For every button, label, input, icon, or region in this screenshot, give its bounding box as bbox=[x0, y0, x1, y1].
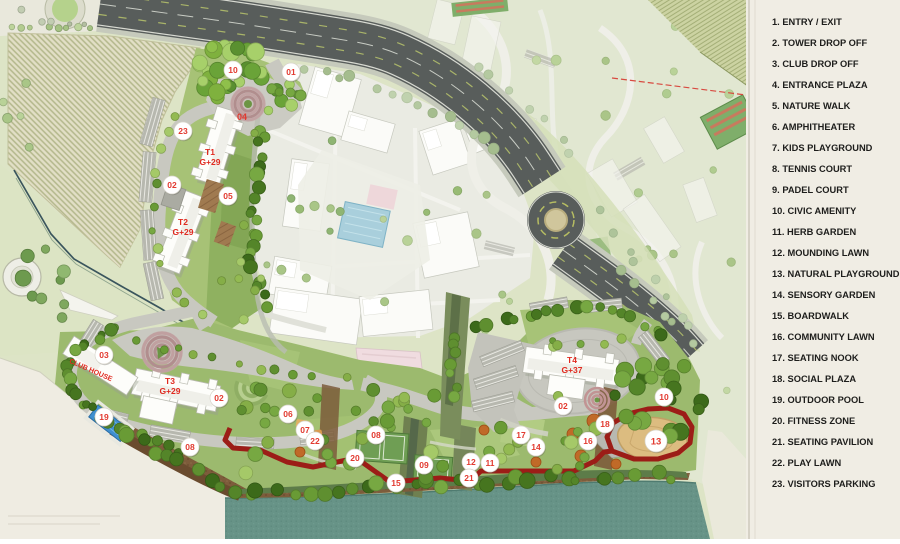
svg-text:3. CLUB DROP OFF: 3. CLUB DROP OFF bbox=[772, 59, 859, 69]
svg-text:08: 08 bbox=[371, 430, 381, 440]
svg-text:7. KIDS PLAYGROUND: 7. KIDS PLAYGROUND bbox=[772, 143, 873, 153]
svg-text:10: 10 bbox=[228, 65, 238, 75]
svg-text:06: 06 bbox=[283, 409, 293, 419]
svg-text:19. OUTDOOR POOL: 19. OUTDOOR POOL bbox=[772, 395, 864, 405]
svg-text:12: 12 bbox=[466, 457, 476, 467]
svg-text:20. FITNESS ZONE: 20. FITNESS ZONE bbox=[772, 416, 855, 426]
svg-text:16. COMMUNITY LAWN: 16. COMMUNITY LAWN bbox=[772, 332, 875, 342]
svg-text:11: 11 bbox=[486, 458, 495, 468]
svg-text:02: 02 bbox=[167, 180, 177, 190]
svg-text:22: 22 bbox=[310, 436, 320, 446]
svg-text:16: 16 bbox=[583, 436, 593, 446]
svg-text:21. SEATING PAVILION: 21. SEATING PAVILION bbox=[772, 437, 874, 447]
svg-text:12. MOUNDING LAWN: 12. MOUNDING LAWN bbox=[772, 248, 869, 258]
svg-text:11. HERB GARDEN: 11. HERB GARDEN bbox=[772, 227, 856, 237]
svg-text:2. TOWER DROP OFF: 2. TOWER DROP OFF bbox=[772, 38, 868, 48]
svg-text:14. SENSORY GARDEN: 14. SENSORY GARDEN bbox=[772, 290, 876, 300]
svg-text:08: 08 bbox=[185, 442, 195, 452]
svg-text:15. BOARDWALK: 15. BOARDWALK bbox=[772, 311, 849, 321]
svg-text:01: 01 bbox=[286, 67, 296, 77]
svg-text:18. SOCIAL PLAZA: 18. SOCIAL PLAZA bbox=[772, 374, 856, 384]
svg-text:09: 09 bbox=[419, 460, 429, 470]
svg-text:4. ENTRANCE PLAZA: 4. ENTRANCE PLAZA bbox=[772, 80, 868, 90]
svg-text:6. AMPHITHEATER: 6. AMPHITHEATER bbox=[772, 122, 855, 132]
svg-text:03: 03 bbox=[99, 350, 109, 360]
svg-text:13. NATURAL PLAYGROUND: 13. NATURAL PLAYGROUND bbox=[772, 269, 900, 279]
svg-text:10. CIVIC AMENITY: 10. CIVIC AMENITY bbox=[772, 206, 857, 216]
svg-text:9. PADEL COURT: 9. PADEL COURT bbox=[772, 185, 849, 195]
svg-text:07: 07 bbox=[300, 425, 310, 435]
svg-text:17: 17 bbox=[516, 430, 526, 440]
svg-text:23. VISITORS PARKING: 23. VISITORS PARKING bbox=[772, 479, 876, 489]
svg-text:8. TENNIS COURT: 8. TENNIS COURT bbox=[772, 164, 852, 174]
svg-text:04: 04 bbox=[237, 112, 247, 122]
svg-text:5. NATURE WALK: 5. NATURE WALK bbox=[772, 101, 851, 111]
svg-text:22. PLAY LAWN: 22. PLAY LAWN bbox=[772, 458, 842, 468]
svg-text:17. SEATING NOOK: 17. SEATING NOOK bbox=[772, 353, 859, 363]
svg-text:19: 19 bbox=[99, 412, 109, 422]
svg-text:21: 21 bbox=[464, 473, 474, 483]
svg-text:05: 05 bbox=[223, 191, 233, 201]
svg-text:13: 13 bbox=[651, 436, 662, 447]
svg-text:02: 02 bbox=[214, 393, 224, 403]
svg-text:15: 15 bbox=[391, 478, 401, 488]
svg-text:10: 10 bbox=[659, 392, 669, 402]
svg-text:18: 18 bbox=[600, 419, 610, 429]
svg-text:20: 20 bbox=[350, 453, 360, 463]
svg-text:02: 02 bbox=[558, 401, 568, 411]
svg-text:1. ENTRY / EXIT: 1. ENTRY / EXIT bbox=[772, 17, 842, 27]
svg-text:14: 14 bbox=[531, 442, 541, 452]
svg-text:23: 23 bbox=[178, 126, 188, 136]
